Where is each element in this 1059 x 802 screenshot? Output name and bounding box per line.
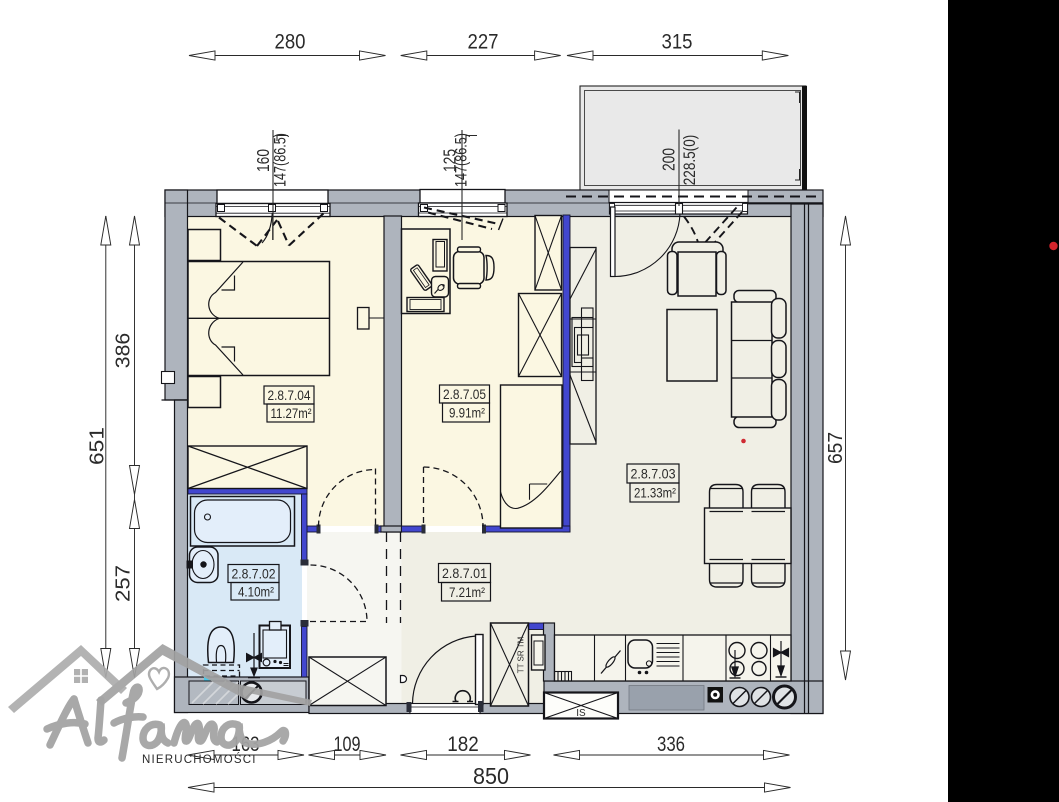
svg-text:7.21m²: 7.21m² — [449, 585, 485, 600]
svg-text:9.91m²: 9.91m² — [449, 406, 485, 421]
svg-text:147(86.5): 147(86.5) — [453, 133, 471, 187]
svg-text:109: 109 — [334, 733, 361, 756]
svg-text:2.8.7.04: 2.8.7.04 — [268, 388, 311, 403]
svg-text:182: 182 — [447, 733, 479, 756]
svg-text:228.5(0): 228.5(0) — [680, 135, 699, 186]
svg-text:280: 280 — [275, 31, 306, 54]
svg-text:386: 386 — [112, 333, 135, 369]
svg-text:2.8.7.01: 2.8.7.01 — [442, 566, 487, 581]
svg-text:257: 257 — [112, 565, 135, 602]
svg-text:IS: IS — [576, 708, 586, 719]
svg-text:315: 315 — [662, 31, 693, 54]
svg-text:200: 200 — [659, 148, 679, 171]
svg-text:657: 657 — [825, 432, 847, 464]
svg-text:336: 336 — [657, 733, 685, 756]
svg-text:2.8.7.03: 2.8.7.03 — [631, 467, 676, 482]
svg-text:2.8.7.05: 2.8.7.05 — [443, 387, 486, 402]
svg-text:850: 850 — [473, 763, 509, 789]
svg-text:21.33m²: 21.33m² — [634, 486, 676, 501]
svg-text:227: 227 — [468, 31, 499, 54]
svg-text:160: 160 — [253, 149, 273, 172]
svg-text:TT SR TM: TT SR TM — [517, 636, 526, 673]
svg-text:NIERUCHOMOŚCI: NIERUCHOMOŚCI — [142, 753, 257, 766]
svg-text:4.10m²: 4.10m² — [238, 585, 274, 600]
svg-text:147(86.5): 147(86.5) — [272, 133, 290, 187]
svg-text:651: 651 — [86, 427, 109, 465]
svg-text:2.8.7.02: 2.8.7.02 — [232, 567, 276, 582]
svg-text:11.27m²: 11.27m² — [271, 406, 312, 421]
